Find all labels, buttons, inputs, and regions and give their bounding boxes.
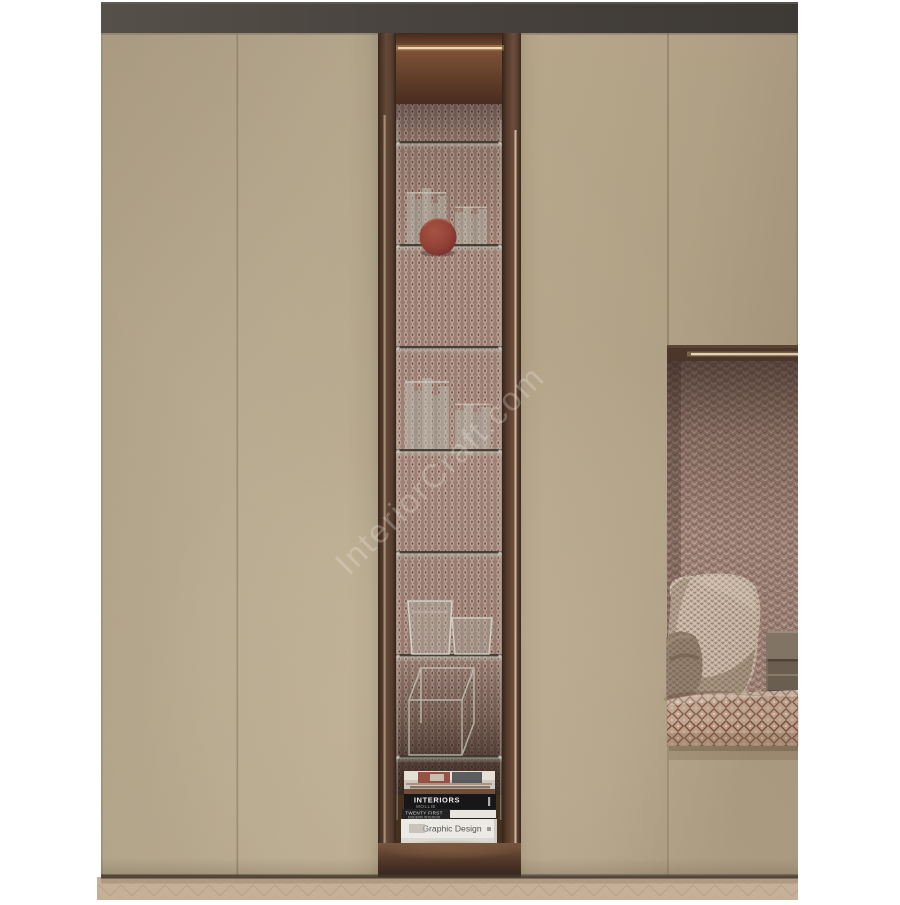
svg-text:MOLLIE: MOLLIE	[416, 804, 436, 809]
svg-text:Graphic Design: Graphic Design	[422, 824, 481, 834]
